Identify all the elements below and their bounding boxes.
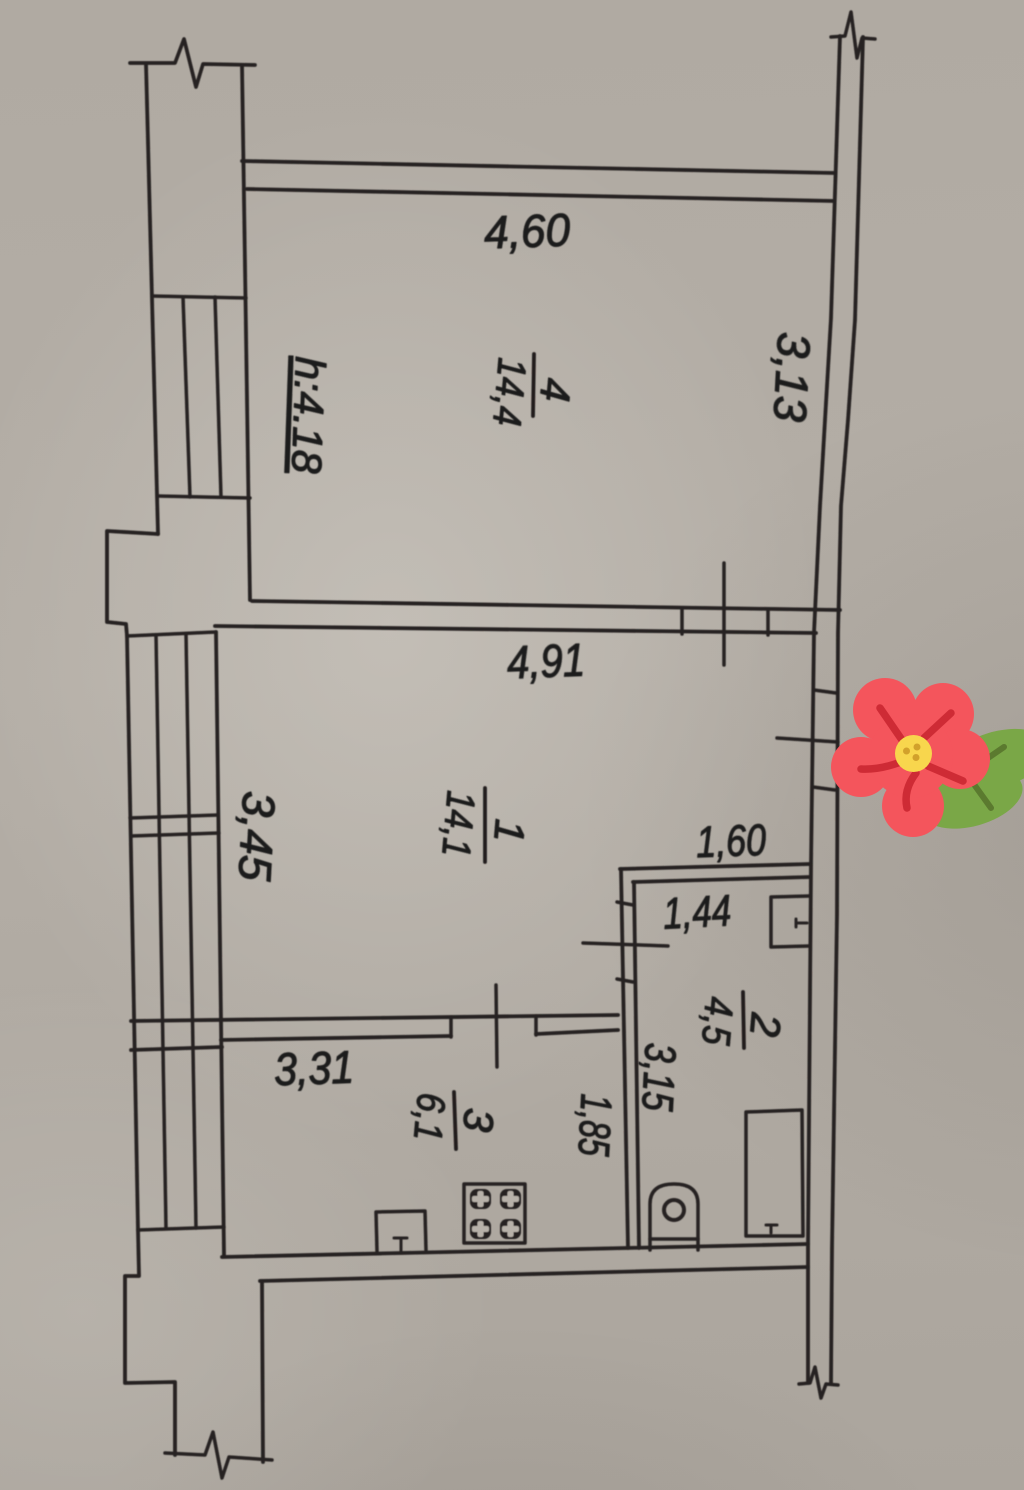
- svg-text:1: 1: [485, 817, 534, 844]
- svg-text:4,5: 4,5: [693, 995, 741, 1047]
- svg-text:14,4: 14,4: [484, 356, 534, 428]
- svg-text:h:4.18: h:4.18: [283, 356, 334, 475]
- svg-text:2: 2: [741, 1010, 790, 1038]
- svg-text:1,60: 1,60: [695, 816, 767, 867]
- svg-text:3,31: 3,31: [273, 1041, 355, 1096]
- svg-text:6,1: 6,1: [405, 1091, 453, 1143]
- svg-text:1,85: 1,85: [568, 1093, 620, 1158]
- svg-text:1,44: 1,44: [662, 886, 732, 938]
- svg-text:4,91: 4,91: [506, 634, 586, 689]
- svg-text:4,60: 4,60: [483, 204, 571, 259]
- svg-text:3,13: 3,13: [764, 331, 821, 424]
- svg-text:3,45: 3,45: [229, 790, 286, 883]
- svg-text:14,1: 14,1: [433, 789, 483, 859]
- svg-text:3: 3: [454, 1106, 503, 1133]
- svg-text:3,15: 3,15: [632, 1042, 685, 1113]
- svg-text:4: 4: [531, 376, 580, 403]
